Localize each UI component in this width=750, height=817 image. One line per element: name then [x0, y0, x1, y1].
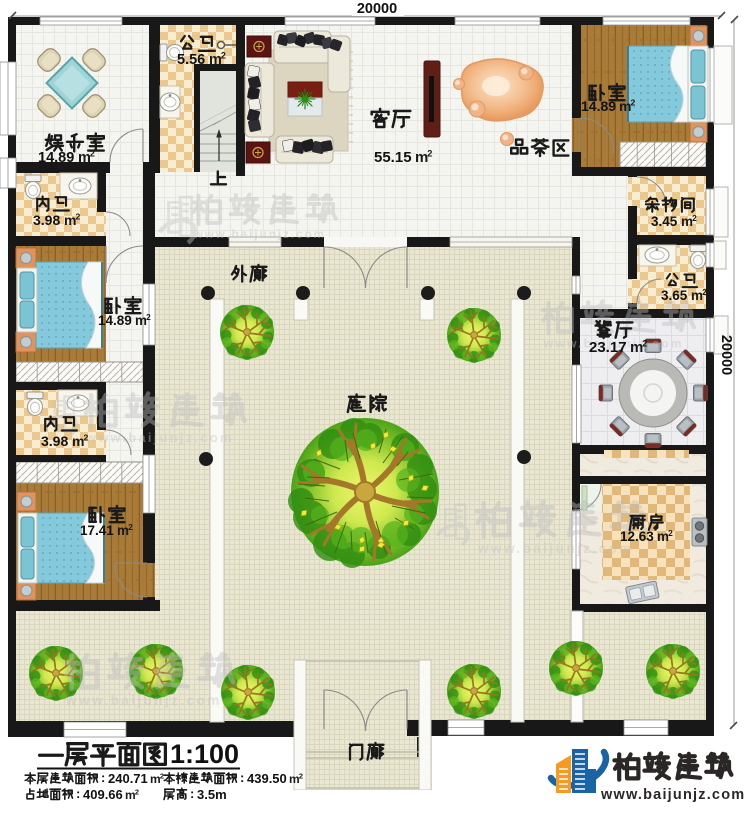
- svg-text::: :: [76, 786, 80, 801]
- svg-text:23.17: 23.17: [589, 339, 627, 356]
- svg-text:55.15: 55.15: [374, 149, 412, 166]
- svg-text:14.89: 14.89: [38, 150, 74, 166]
- svg-text:2: 2: [83, 433, 88, 443]
- svg-text:3.98: 3.98: [33, 212, 60, 228]
- svg-text:409.66: 409.66: [83, 787, 123, 802]
- svg-text:439.50: 439.50: [247, 771, 287, 786]
- svg-text:2: 2: [668, 528, 673, 538]
- svg-text:20000: 20000: [718, 335, 734, 375]
- svg-text:2: 2: [630, 98, 635, 108]
- svg-text:2: 2: [427, 148, 432, 158]
- svg-text:14.89: 14.89: [98, 313, 132, 328]
- svg-text:www.baijunjz.com: www.baijunjz.com: [85, 430, 234, 445]
- svg-text:2: 2: [692, 213, 697, 223]
- svg-text:2: 2: [160, 771, 164, 780]
- svg-text:240.71: 240.71: [108, 771, 148, 786]
- svg-text:3.45: 3.45: [651, 214, 678, 229]
- svg-text::: :: [190, 786, 194, 801]
- svg-text:2: 2: [642, 338, 647, 348]
- svg-text:14.89: 14.89: [581, 98, 616, 114]
- svg-text:1:100: 1:100: [170, 739, 239, 769]
- svg-text:www.baijunjz.com: www.baijunjz.com: [477, 541, 634, 556]
- svg-text:5.56: 5.56: [177, 52, 205, 68]
- svg-text:17.41: 17.41: [80, 523, 114, 538]
- svg-text:2: 2: [146, 312, 151, 322]
- svg-text:2: 2: [221, 50, 226, 60]
- svg-text::: :: [101, 770, 105, 785]
- svg-text:2: 2: [135, 787, 139, 796]
- svg-text:12.63: 12.63: [620, 529, 654, 544]
- svg-text:3.98: 3.98: [41, 433, 68, 449]
- svg-text:2: 2: [128, 522, 133, 532]
- svg-text:2: 2: [90, 148, 95, 158]
- svg-text:www.baijunjz.com: www.baijunjz.com: [65, 693, 222, 708]
- svg-text:2: 2: [702, 287, 707, 297]
- svg-text:3.65: 3.65: [661, 288, 688, 303]
- svg-text:www.baijunjz.com: www.baijunjz.com: [193, 229, 326, 241]
- svg-text:www.baijunjz.com: www.baijunjz.com: [600, 787, 745, 803]
- svg-text::: :: [240, 770, 244, 785]
- svg-text:3.5m: 3.5m: [197, 787, 227, 802]
- svg-text:2: 2: [299, 771, 303, 780]
- svg-text:20000: 20000: [357, 1, 397, 17]
- svg-text:2: 2: [75, 212, 80, 222]
